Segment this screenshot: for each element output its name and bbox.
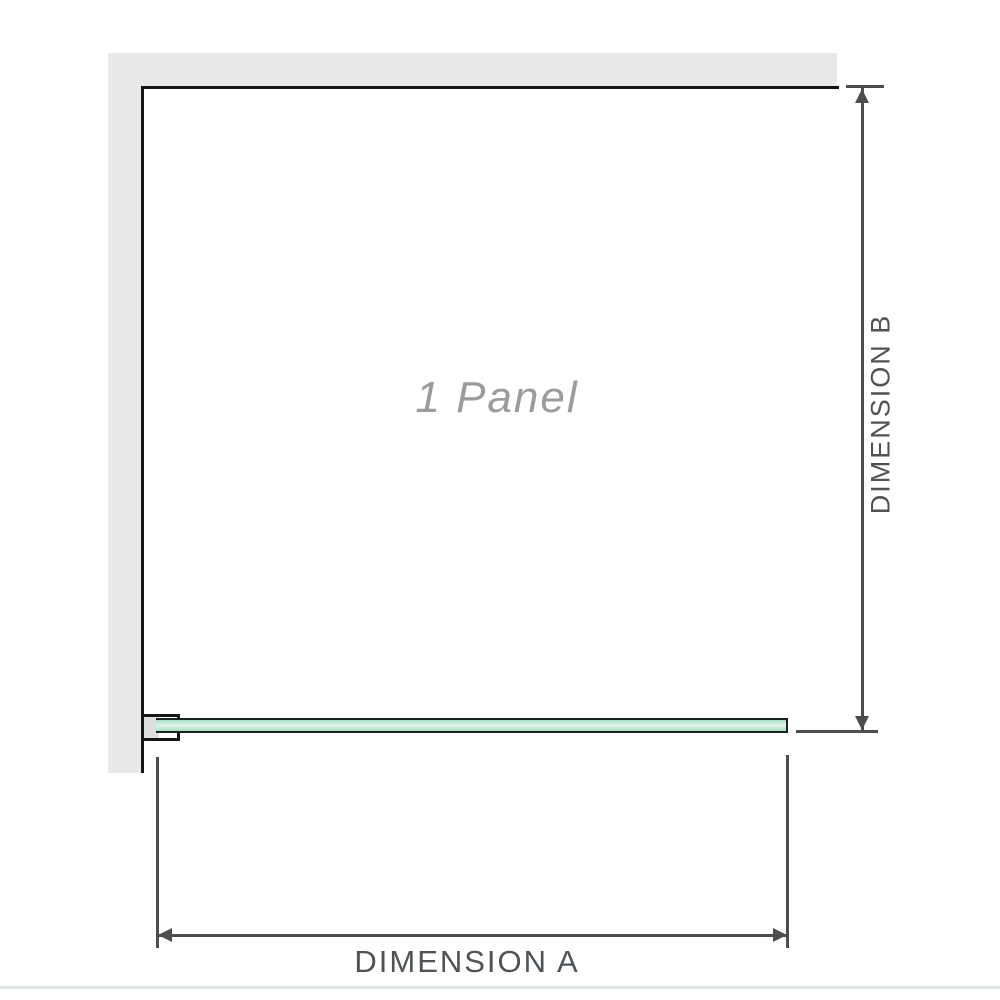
arrow-up-icon bbox=[855, 89, 869, 103]
dimension-a-label: DIMENSION A bbox=[354, 944, 579, 980]
panel-count-label: 1 Panel bbox=[415, 373, 578, 423]
arrow-right-icon bbox=[773, 928, 787, 942]
arrow-left-icon bbox=[158, 928, 172, 942]
panel-dimension-diagram: 1 Panel DIMENSION B DIMENSION A bbox=[0, 0, 1000, 1000]
bottom-divider-line bbox=[0, 986, 1000, 989]
dimension-a-extension-left bbox=[156, 757, 159, 948]
arrow-down-icon bbox=[855, 716, 869, 730]
dimension-b-tick-bottom bbox=[796, 730, 878, 733]
enclosure-outline-top bbox=[141, 86, 839, 89]
enclosure-outline-left bbox=[141, 86, 144, 773]
dimension-b-line bbox=[861, 86, 864, 732]
wall-left-band bbox=[108, 53, 141, 773]
glass-panel-bar bbox=[156, 718, 788, 733]
dimension-b-label: DIMENSION B bbox=[866, 314, 897, 515]
dimension-a-line bbox=[158, 934, 787, 937]
wall-top-band bbox=[108, 53, 837, 86]
dimension-b-tick-top bbox=[846, 85, 884, 88]
dimension-a-extension-right bbox=[786, 755, 789, 948]
